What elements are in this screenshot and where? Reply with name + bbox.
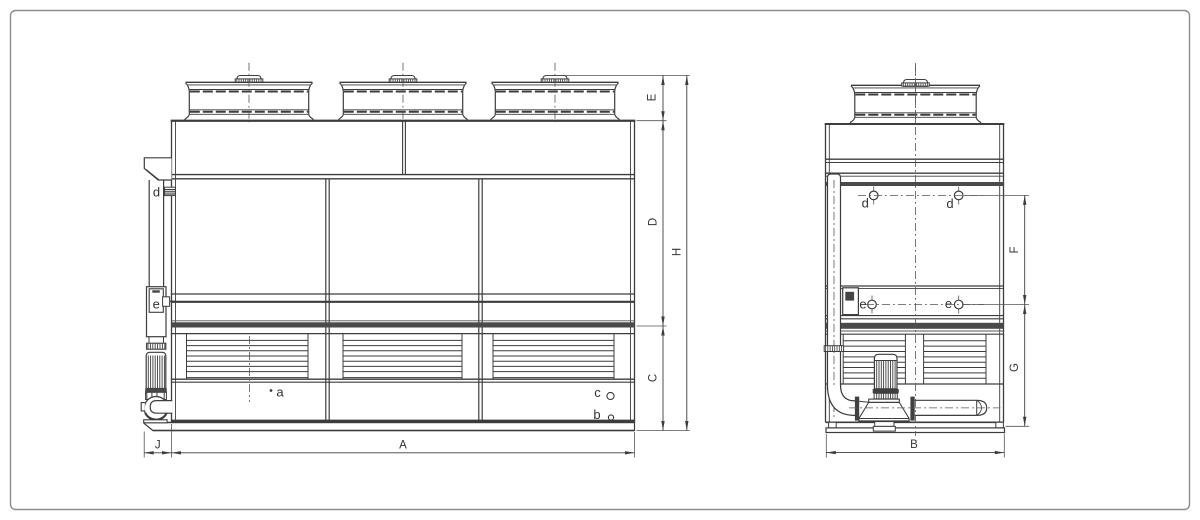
svg-text:D: D	[648, 218, 660, 226]
svg-text:e: e	[945, 296, 952, 311]
svg-text:C: C	[648, 374, 660, 382]
svg-text:B: B	[910, 439, 918, 451]
svg-text:e: e	[153, 297, 160, 312]
svg-text:J: J	[155, 440, 161, 452]
svg-text:A: A	[399, 440, 407, 452]
svg-text:c: c	[594, 385, 601, 400]
svg-text:a: a	[276, 385, 284, 400]
svg-text:d: d	[153, 185, 160, 200]
svg-text:d: d	[946, 196, 953, 211]
svg-text:F: F	[1009, 246, 1021, 253]
svg-text:e: e	[859, 297, 866, 312]
svg-text:d: d	[862, 196, 869, 211]
svg-text:G: G	[1009, 363, 1021, 372]
svg-text:E: E	[647, 93, 659, 101]
svg-text:H: H	[672, 248, 684, 256]
